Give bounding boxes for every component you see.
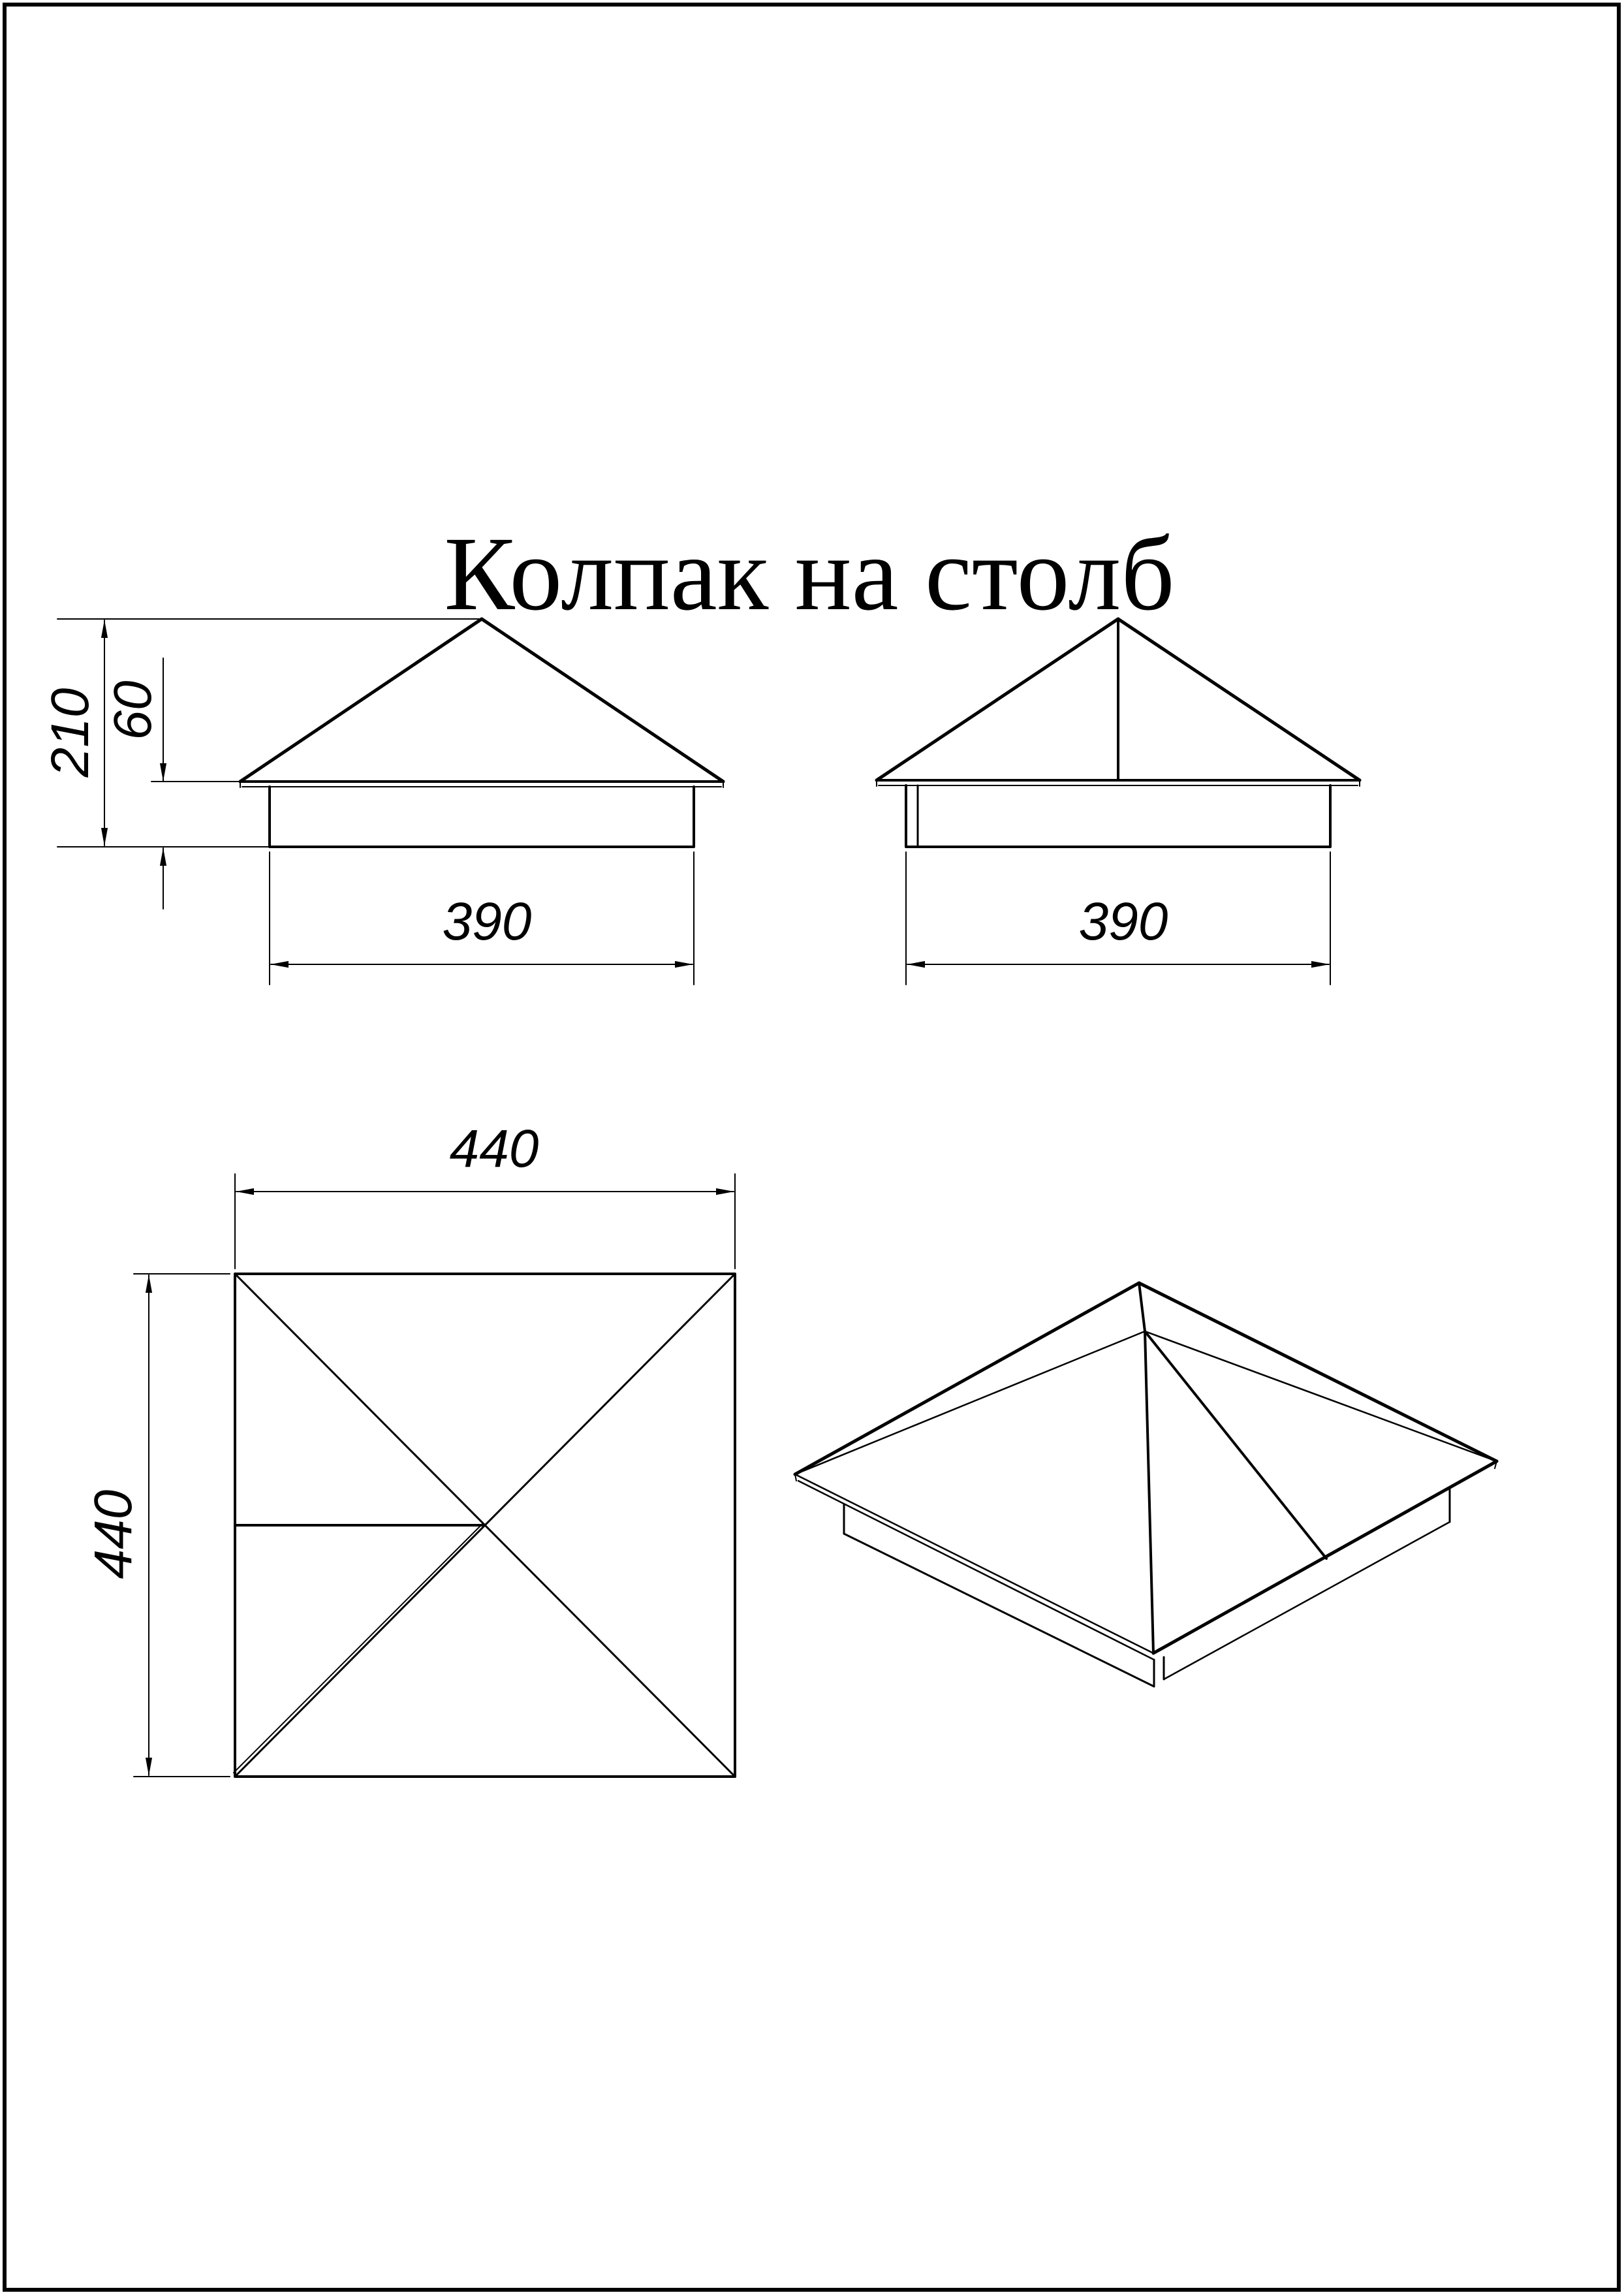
cad-drawing bbox=[0, 0, 1624, 2295]
top-view bbox=[134, 1174, 735, 1777]
front-view bbox=[57, 619, 723, 985]
drawing-sheet: Колпак на столб 210 60 390 390 440 440 bbox=[0, 0, 1624, 2295]
page-title: Колпак на столб bbox=[444, 514, 1174, 635]
side-dim-width: 390 bbox=[1079, 891, 1168, 953]
front-dim-width: 390 bbox=[443, 891, 532, 953]
front-dim-skirt-height: 60 bbox=[102, 680, 164, 740]
top-dim-width: 440 bbox=[450, 1118, 539, 1180]
top-dim-depth: 440 bbox=[83, 1490, 144, 1579]
front-dim-total-height: 210 bbox=[40, 688, 101, 778]
isometric-view bbox=[795, 1283, 1497, 1686]
